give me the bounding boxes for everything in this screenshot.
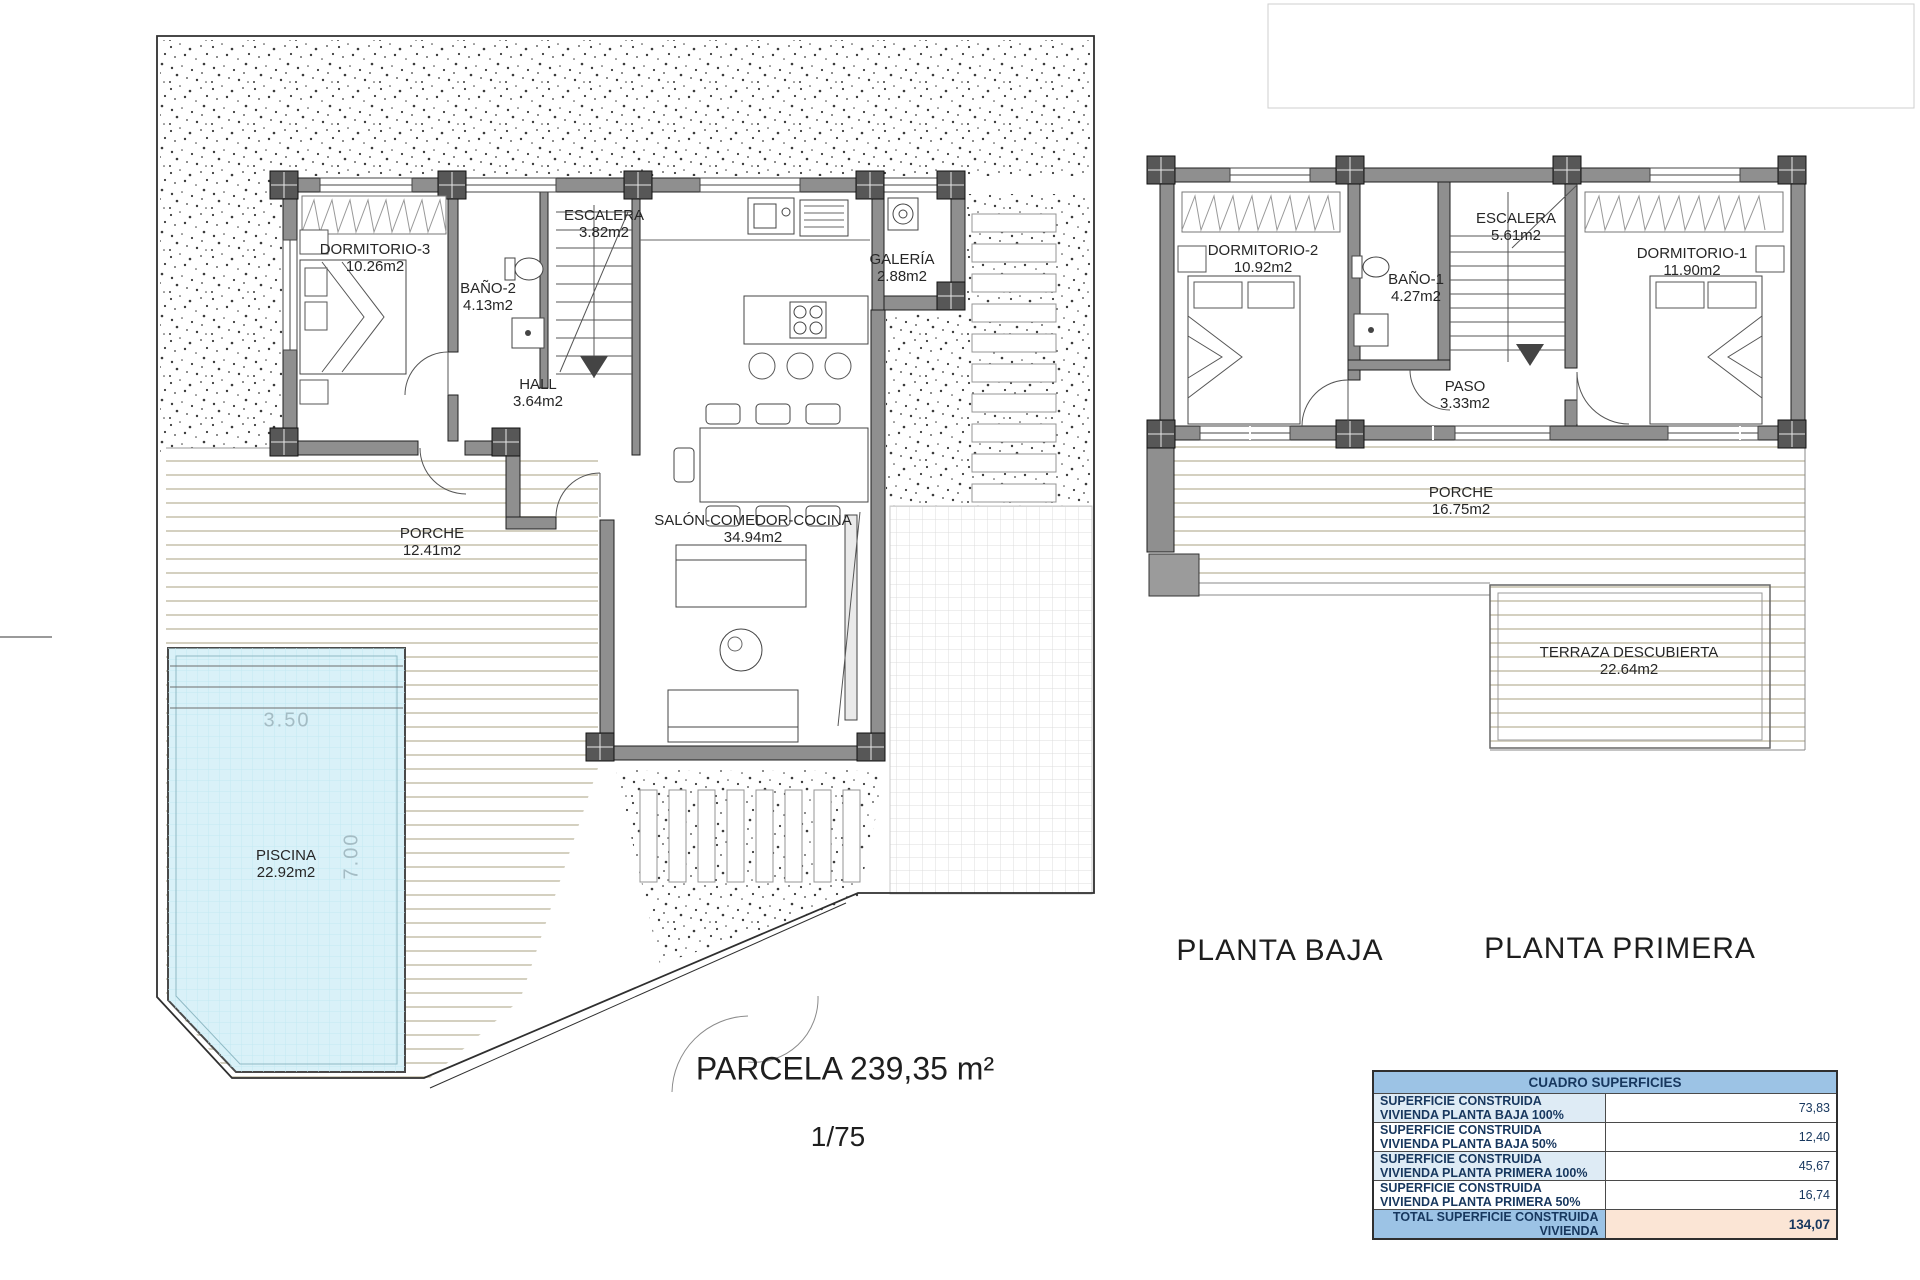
- room-label-escalera-primera: ESCALERA5.61m2: [1476, 210, 1556, 245]
- room-label-salon-comedor-cocina: SALÓN-COMEDOR-COCINA34.94m2: [654, 512, 852, 547]
- room-label-dormitorio-2: DORMITORIO-210.92m2: [1208, 242, 1319, 277]
- surfaces-table: CUADRO SUPERFICIES SUPERFICIE CONSTRUIDA…: [1372, 1070, 1838, 1240]
- room-label-escalera-baja: ESCALERA3.82m2: [564, 207, 644, 242]
- room-label-terraza-descubierta: TERRAZA DESCUBIERTA22.64m2: [1540, 644, 1719, 679]
- scale-label: 1/75: [811, 1121, 866, 1153]
- room-label-galeria: GALERÍA2.88m2: [869, 251, 934, 286]
- room-label-dormitorio-1: DORMITORIO-111.90m2: [1637, 245, 1748, 280]
- table-cell-value: 73,83: [1605, 1094, 1837, 1123]
- room-label-bano-1: BAÑO-14.27m2: [1388, 271, 1444, 306]
- plan-title-planta-primera: PLANTA PRIMERA: [1484, 932, 1756, 967]
- table-total-row: TOTAL SUPERFICIE CONSTRUIDA VIVIENDA 134…: [1373, 1210, 1837, 1240]
- table-cell-value: 45,67: [1605, 1152, 1837, 1181]
- room-label-bano-2: BAÑO-24.13m2: [460, 280, 516, 315]
- table-cell-value: 12,40: [1605, 1123, 1837, 1152]
- table-total-value: 134,07: [1605, 1210, 1837, 1240]
- table-row: SUPERFICIE CONSTRUIDA VIVIENDA PLANTA BA…: [1373, 1123, 1837, 1152]
- table-row: SUPERFICIE CONSTRUIDA VIVIENDA PLANTA PR…: [1373, 1181, 1837, 1210]
- pool-length-dim: 7.00: [341, 833, 364, 880]
- table-row: SUPERFICIE CONSTRUIDA VIVIENDA PLANTA BA…: [1373, 1094, 1837, 1123]
- pool-width-dim: 3.50: [264, 710, 311, 733]
- table-header-row: CUADRO SUPERFICIES: [1373, 1071, 1837, 1094]
- table-cell-label: SUPERFICIE CONSTRUIDA VIVIENDA PLANTA PR…: [1373, 1152, 1605, 1181]
- room-label-paso: PASO3.33m2: [1440, 378, 1490, 413]
- room-label-hall: HALL3.64m2: [513, 376, 563, 411]
- room-label-porche-primera: PORCHE16.75m2: [1429, 484, 1493, 519]
- table-cell-label: SUPERFICIE CONSTRUIDA VIVIENDA PLANTA PR…: [1373, 1181, 1605, 1210]
- table-title: CUADRO SUPERFICIES: [1373, 1071, 1837, 1094]
- plan-title-planta-baja: PLANTA BAJA: [1176, 934, 1383, 969]
- room-label-dormitorio-3: DORMITORIO-310.26m2: [320, 241, 431, 276]
- room-label-porche-baja: PORCHE12.41m2: [400, 525, 464, 560]
- table-total-label: TOTAL SUPERFICIE CONSTRUIDA VIVIENDA: [1373, 1210, 1605, 1240]
- room-label-piscina: PISCINA22.92m2: [256, 847, 316, 882]
- blueprint-canvas: DORMITORIO-310.26m2 BAÑO-24.13m2 ESCALER…: [0, 0, 1920, 1280]
- table-cell-value: 16,74: [1605, 1181, 1837, 1210]
- table-cell-label: SUPERFICIE CONSTRUIDA VIVIENDA PLANTA BA…: [1373, 1123, 1605, 1152]
- table-cell-label: SUPERFICIE CONSTRUIDA VIVIENDA PLANTA BA…: [1373, 1094, 1605, 1123]
- parcel-area-label: PARCELA 239,35 m²: [696, 1051, 994, 1088]
- table-row: SUPERFICIE CONSTRUIDA VIVIENDA PLANTA PR…: [1373, 1152, 1837, 1181]
- ground-floor-plan: [0, 36, 1094, 1092]
